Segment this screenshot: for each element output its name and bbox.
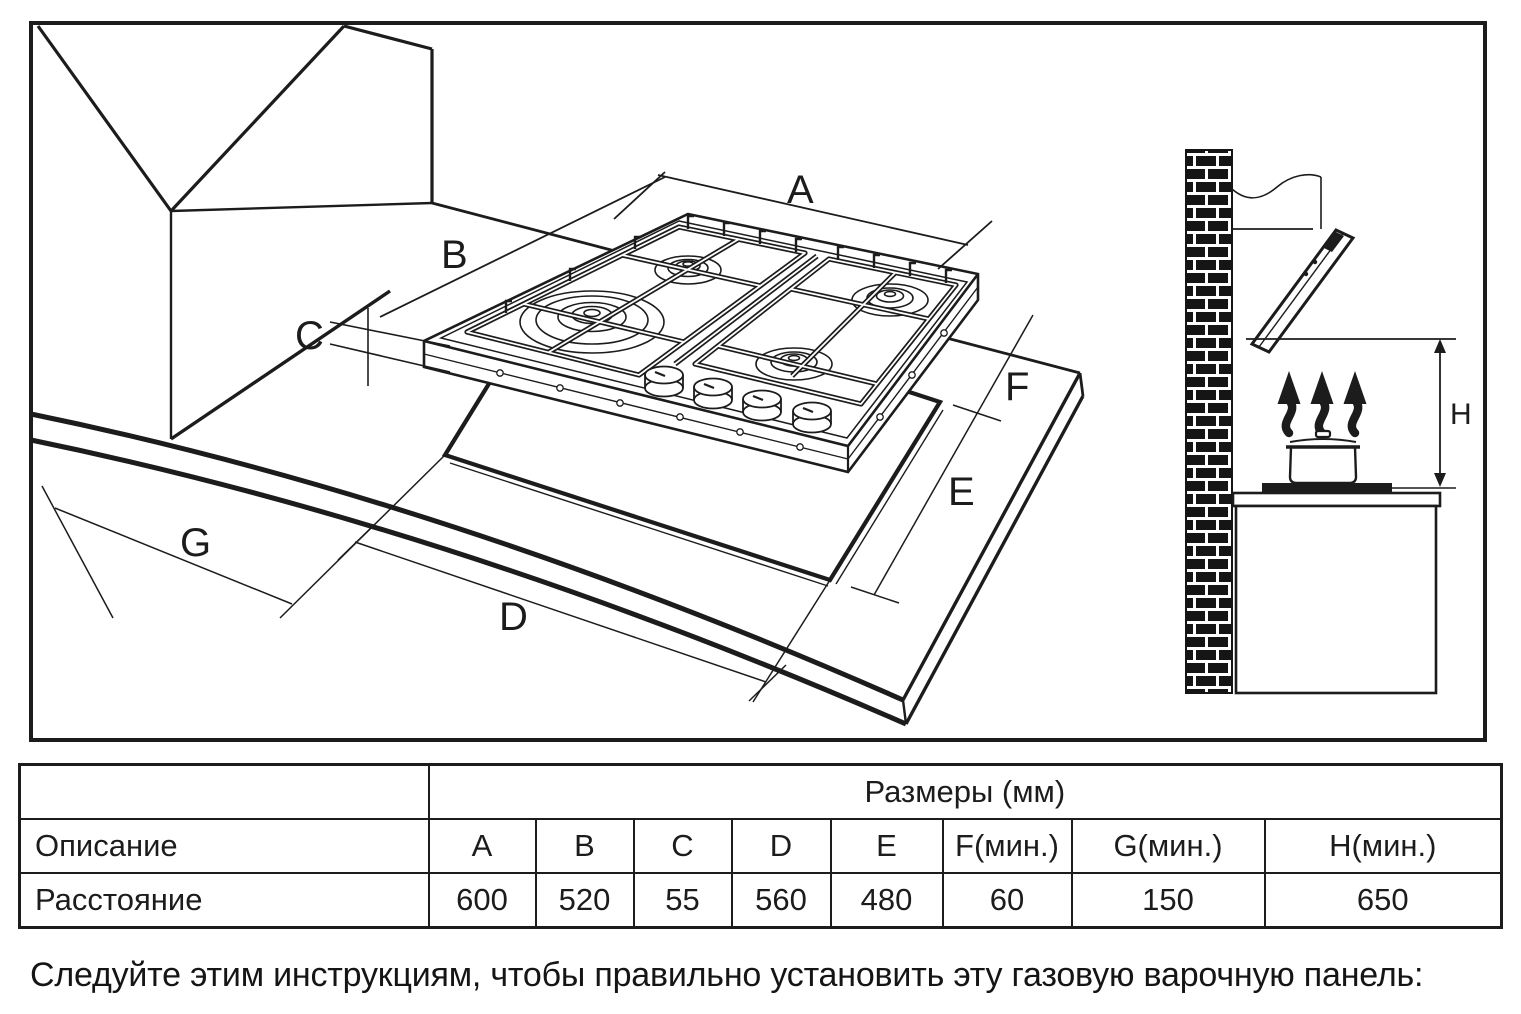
knob — [793, 403, 831, 433]
table-row: Описание A B C D E F(мин.) G(мин.) H(мин… — [20, 819, 1502, 873]
value-cell: 600 — [429, 873, 536, 928]
value-cell: 650 — [1265, 873, 1502, 928]
installation-diagram: A B C D E F G — [0, 0, 1521, 760]
instruction-text: Следуйте этим инструкциям, чтобы правиль… — [30, 956, 1423, 995]
dim-label-b: B — [441, 233, 468, 277]
value-cell: 520 — [536, 873, 634, 928]
base-cabinet-section — [1236, 506, 1436, 693]
col-header: E — [831, 819, 943, 873]
knob — [694, 379, 732, 409]
value-cell: 55 — [634, 873, 732, 928]
table-title-cell: Размеры (мм) — [429, 765, 1502, 820]
empty-header-cell — [20, 765, 429, 820]
table-row: Расстояние 600 520 55 560 480 60 150 650 — [20, 873, 1502, 928]
table-header-row: Размеры (мм) — [20, 765, 1502, 820]
manual-page: A B C D E F G — [0, 0, 1521, 1014]
knob — [645, 367, 683, 397]
col-header: A — [429, 819, 536, 873]
col-header: H(мин.) — [1265, 819, 1502, 873]
knob — [743, 391, 781, 421]
dim-label-c: C — [295, 314, 324, 358]
dim-label-f: F — [1005, 365, 1029, 409]
dimensions-table: Размеры (мм) Описание A B C D E F(мин.) … — [18, 763, 1503, 929]
row-label: Расстояние — [20, 873, 429, 928]
col-header: D — [732, 819, 831, 873]
value-cell: 150 — [1072, 873, 1265, 928]
dim-label-h: H — [1450, 398, 1472, 431]
worktop-section — [1233, 493, 1440, 506]
value-cell: 60 — [943, 873, 1072, 928]
row-label: Описание — [20, 819, 429, 873]
dim-label-a: A — [787, 168, 814, 212]
col-header: B — [536, 819, 634, 873]
value-cell: 560 — [732, 873, 831, 928]
hob-section — [1262, 483, 1392, 493]
dim-label-g: G — [180, 521, 211, 565]
value-cell: 480 — [831, 873, 943, 928]
brick-wall — [1186, 150, 1232, 693]
col-header: G(мин.) — [1072, 819, 1265, 873]
dim-label-d: D — [499, 595, 528, 639]
dim-label-e: E — [948, 470, 975, 514]
col-header: C — [634, 819, 732, 873]
col-header: F(мин.) — [943, 819, 1072, 873]
